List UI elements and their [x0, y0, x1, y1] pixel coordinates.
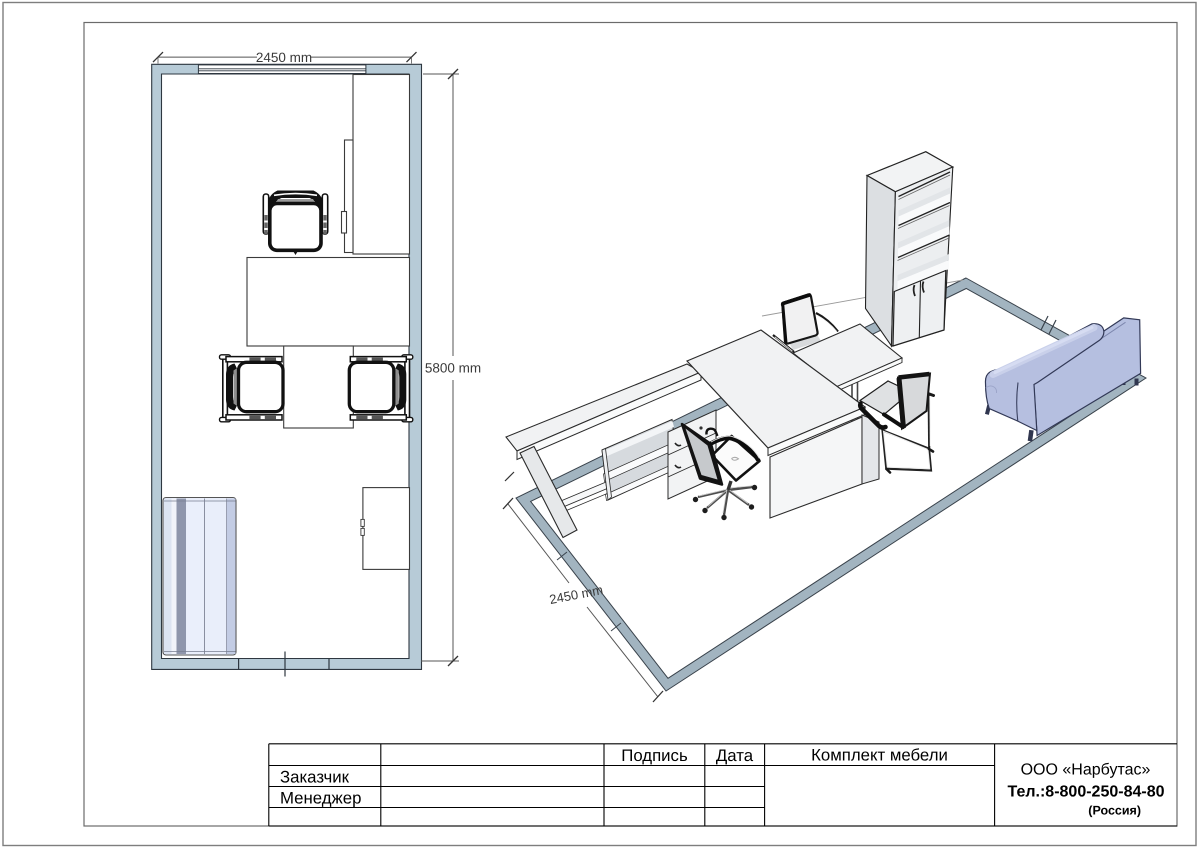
svg-text:Заказчик: Заказчик: [280, 768, 350, 787]
svg-text:ООО «Нарбутас»: ООО «Нарбутас»: [1021, 762, 1151, 779]
svg-text:2450 mm: 2450 mm: [256, 50, 312, 65]
svg-text:Подпись: Подпись: [621, 746, 688, 765]
svg-text:5800 mm: 5800 mm: [425, 361, 481, 376]
svg-text:Менеджер: Менеджер: [280, 789, 361, 808]
svg-text:Дата: Дата: [716, 746, 754, 765]
svg-text:(Россия): (Россия): [1088, 804, 1141, 818]
svg-text:Тел.:8-800-250-84-80: Тел.:8-800-250-84-80: [1007, 784, 1164, 801]
svg-text:Комплект мебели: Комплект мебели: [811, 746, 948, 765]
